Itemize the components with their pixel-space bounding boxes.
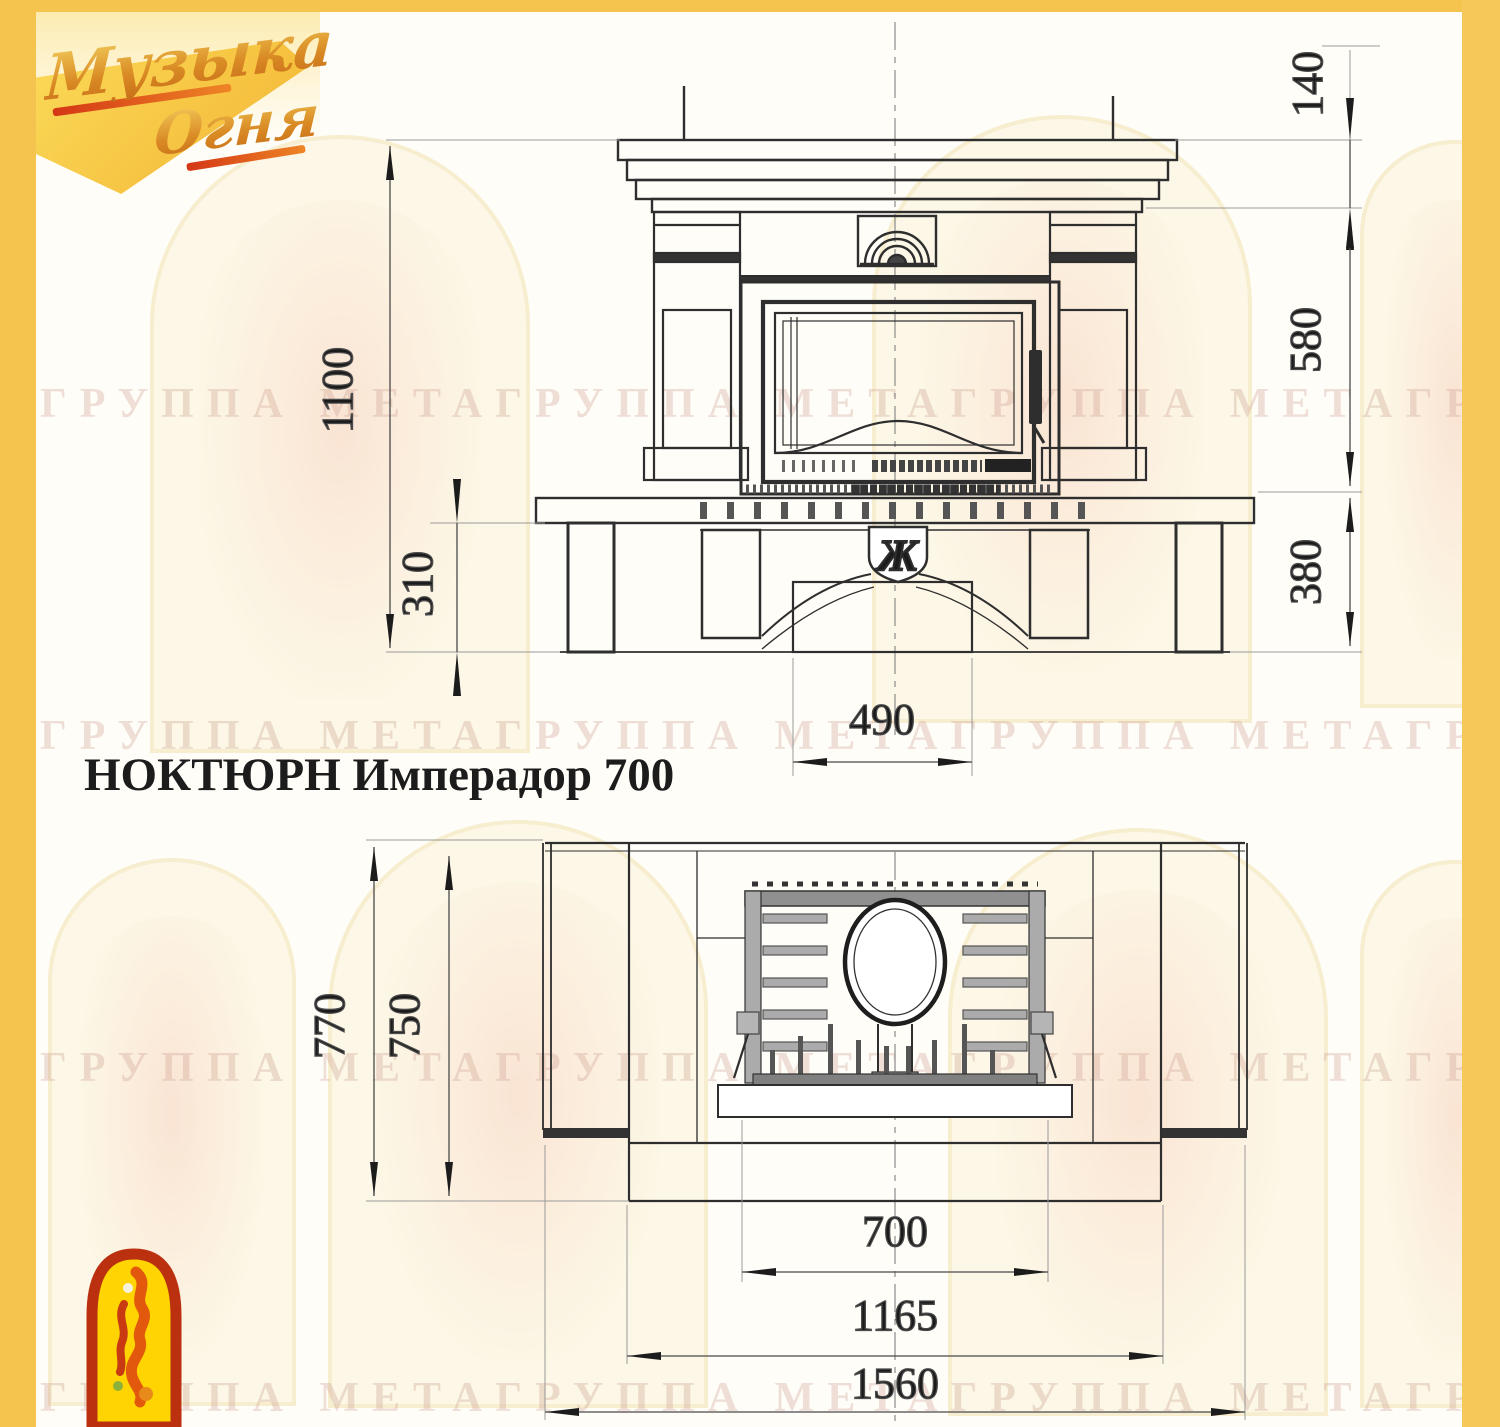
fan-ornament bbox=[860, 232, 934, 264]
dim-label: 750 bbox=[380, 993, 429, 1059]
extension-lines bbox=[386, 46, 1380, 776]
front-view-drawing: Ж bbox=[536, 22, 1254, 742]
flame-spark bbox=[123, 1283, 133, 1293]
left-column bbox=[644, 212, 748, 480]
hearth-slab-plan bbox=[718, 1085, 1072, 1117]
dim-1100: 1100 bbox=[313, 146, 390, 648]
drawing-sheet: ГРУППА МЕТАГРУППА МЕТАГРУППА МЕТАГРУППА … bbox=[0, 0, 1500, 1427]
flame-figure-inner bbox=[120, 1304, 124, 1372]
dim-label: 580 bbox=[1281, 307, 1330, 373]
dim-770: 770 bbox=[305, 847, 374, 1196]
firebox-insert bbox=[741, 282, 1059, 494]
log-guard-curve bbox=[775, 421, 1022, 453]
dim-140: 140 bbox=[1283, 51, 1354, 250]
flame-spark bbox=[139, 1387, 153, 1401]
dim-1560: 1560 bbox=[545, 1359, 1245, 1412]
ash-slot bbox=[985, 459, 1031, 472]
base-leg-left bbox=[702, 530, 760, 638]
dim-750: 750 bbox=[380, 856, 449, 1196]
dim-310: 310 bbox=[393, 479, 461, 696]
shield-letter: Ж bbox=[875, 531, 920, 580]
door-handle bbox=[1029, 350, 1042, 424]
base-leg-right bbox=[1030, 530, 1088, 638]
dim-490: 490 bbox=[793, 695, 972, 762]
emblem-arch bbox=[92, 1254, 176, 1427]
flame-spark bbox=[113, 1381, 123, 1391]
corner-pad bbox=[1031, 1012, 1053, 1034]
dim-label: 490 bbox=[849, 695, 915, 744]
plan-view-dimensions: 770 750 700 1165 1560 bbox=[305, 840, 1245, 1420]
wall-anchors bbox=[684, 86, 1113, 140]
firebox-front-band bbox=[753, 1074, 1037, 1085]
dentil-row bbox=[700, 502, 1085, 519]
dim-label: 140 bbox=[1283, 51, 1332, 117]
dim-label: 1165 bbox=[852, 1291, 938, 1340]
technical-drawing: Ж 1100 bbox=[0, 0, 1500, 1427]
extension-lines bbox=[366, 840, 1245, 1420]
dim-label: 310 bbox=[393, 551, 442, 617]
base-slab-left bbox=[568, 523, 614, 652]
dim-label: 1560 bbox=[851, 1359, 939, 1408]
dim-label: 700 bbox=[862, 1207, 928, 1256]
dim-380: 380 bbox=[1281, 498, 1350, 646]
dim-580: 580 bbox=[1281, 214, 1350, 486]
fire-dancer-emblem bbox=[84, 1244, 184, 1427]
door-hinge bbox=[791, 317, 797, 449]
dim-label: 1100 bbox=[313, 347, 362, 433]
flue-outlet bbox=[845, 900, 945, 1024]
mantel-shelf bbox=[618, 140, 1177, 212]
dim-label: 770 bbox=[305, 993, 354, 1059]
front-view-dimensions: 1100 310 490 140 58 bbox=[313, 46, 1380, 776]
dim-label: 380 bbox=[1281, 539, 1330, 605]
corner-pad bbox=[737, 1012, 759, 1034]
base-slab-right bbox=[1176, 523, 1222, 652]
